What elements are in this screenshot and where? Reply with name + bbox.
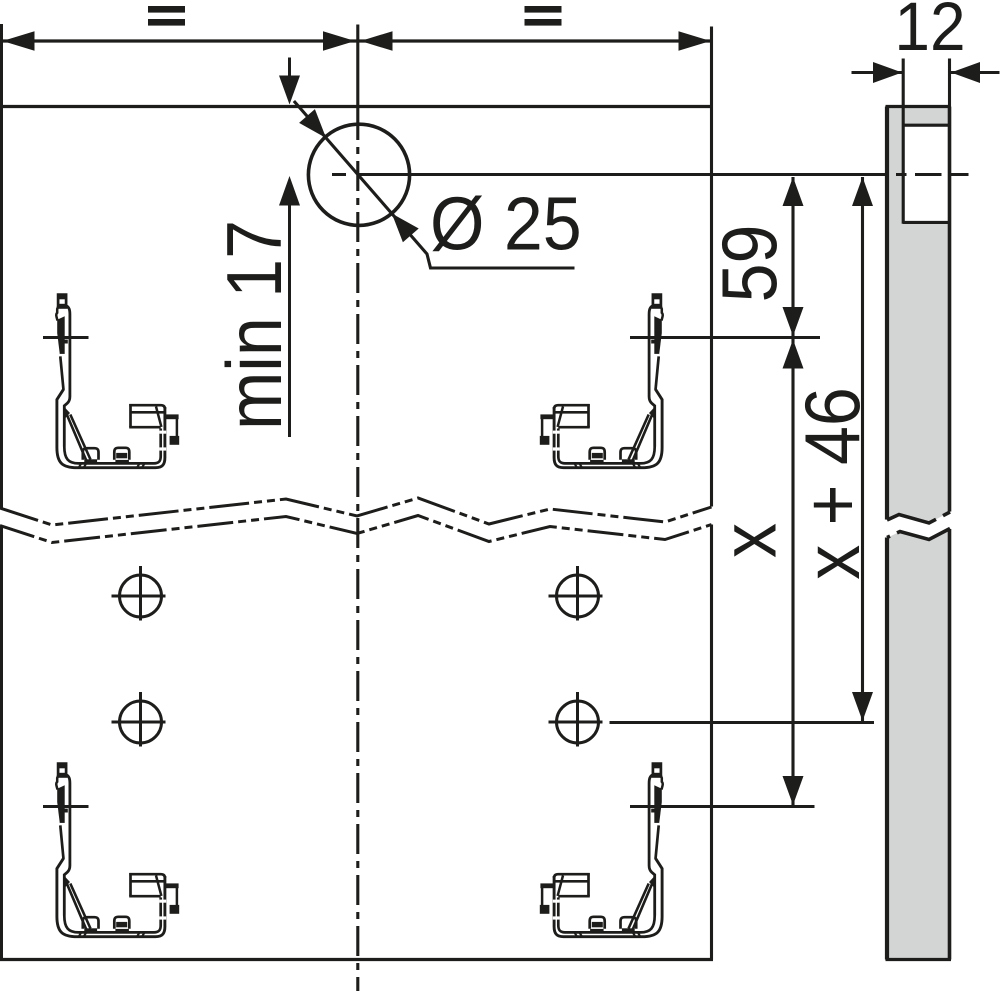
svg-text:Ø 25: Ø 25 <box>430 182 582 266</box>
svg-text:x + 46: x + 46 <box>788 387 876 580</box>
svg-text:min 17: min 17 <box>210 220 298 430</box>
svg-text:59: 59 <box>705 225 793 303</box>
svg-text:12: 12 <box>894 0 965 66</box>
svg-text:x: x <box>705 523 793 558</box>
